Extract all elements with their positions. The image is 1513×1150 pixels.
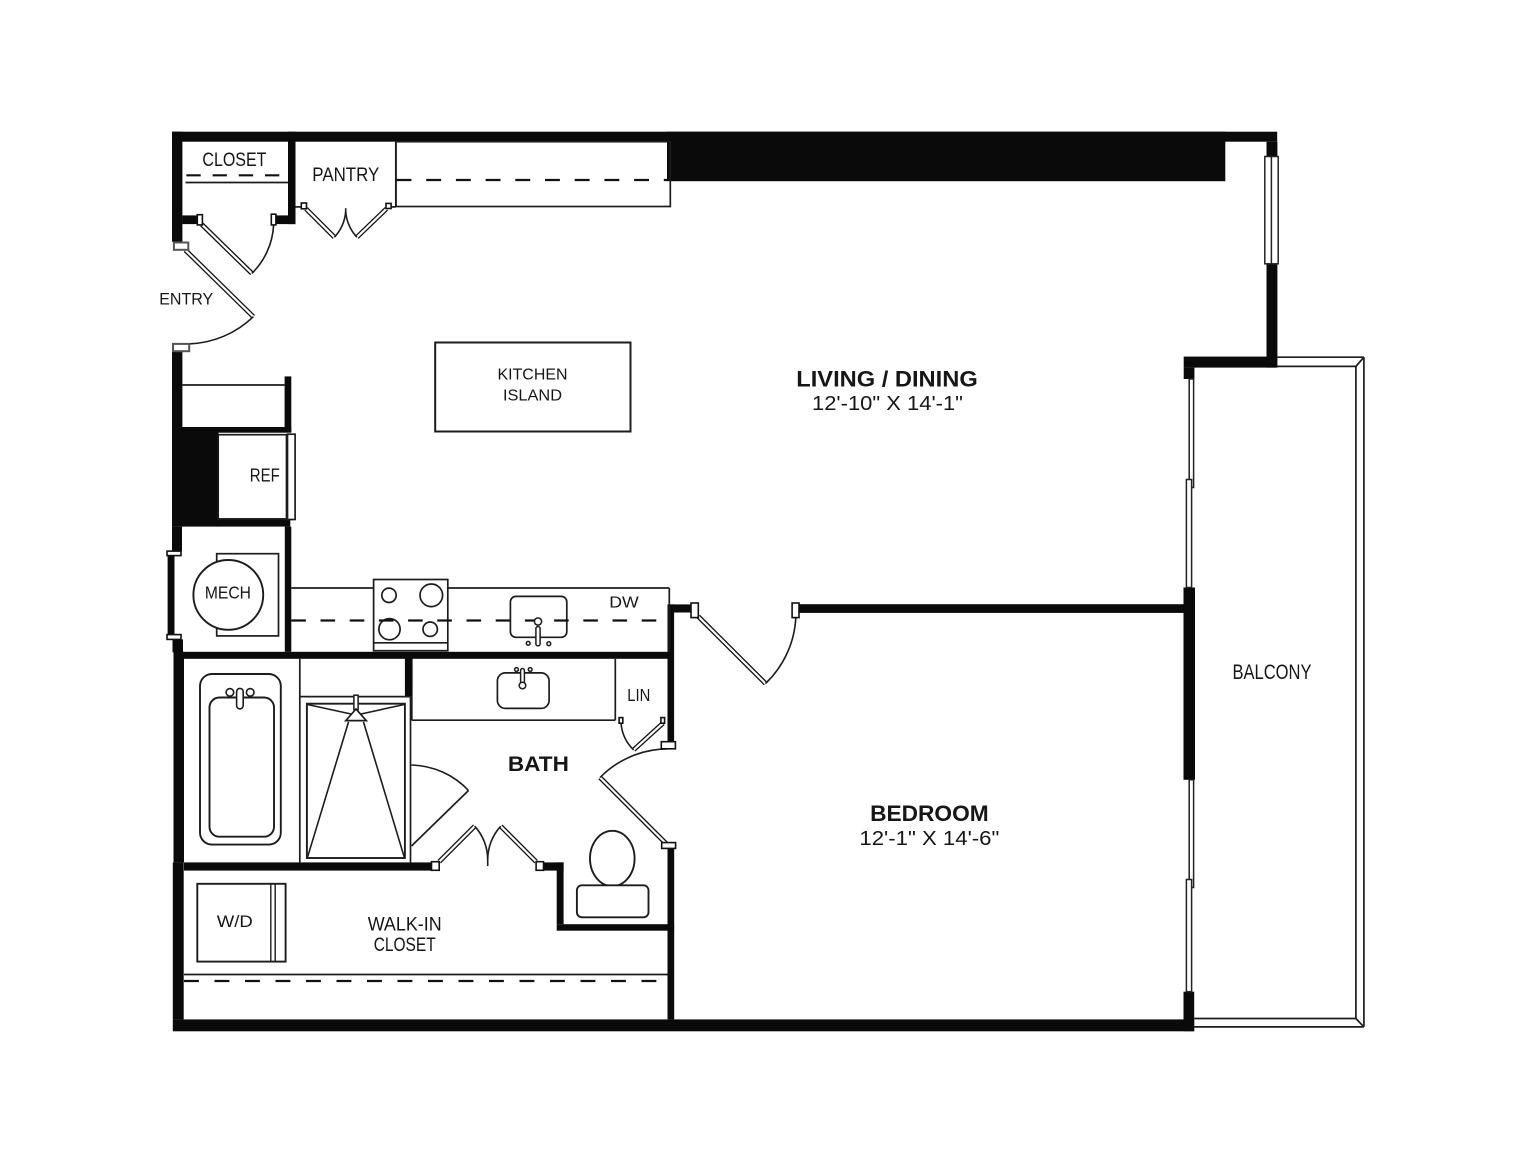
svg-text:BEDROOM: BEDROOM bbox=[870, 801, 989, 826]
svg-text:BATH: BATH bbox=[508, 753, 569, 776]
svg-text:KITCHEN: KITCHEN bbox=[498, 366, 568, 383]
svg-text:W/D: W/D bbox=[217, 912, 253, 931]
svg-text:12'-1" X 14'-6": 12'-1" X 14'-6" bbox=[859, 828, 999, 850]
svg-text:ISLAND: ISLAND bbox=[503, 388, 562, 405]
svg-text:REF: REF bbox=[250, 465, 280, 485]
svg-text:CLOSET: CLOSET bbox=[374, 934, 436, 956]
svg-text:LIVING / DINING: LIVING / DINING bbox=[796, 367, 978, 392]
svg-text:CLOSET: CLOSET bbox=[202, 149, 266, 171]
svg-text:LIN: LIN bbox=[627, 685, 650, 705]
svg-text:ENTRY: ENTRY bbox=[159, 290, 213, 308]
svg-text:12'-10" X 14'-1": 12'-10" X 14'-1" bbox=[812, 393, 963, 415]
svg-text:BALCONY: BALCONY bbox=[1233, 661, 1312, 684]
svg-text:PANTRY: PANTRY bbox=[312, 164, 379, 186]
svg-text:WALK-IN: WALK-IN bbox=[368, 914, 442, 936]
svg-text:DW: DW bbox=[609, 594, 639, 611]
svg-text:MECH: MECH bbox=[205, 583, 251, 603]
